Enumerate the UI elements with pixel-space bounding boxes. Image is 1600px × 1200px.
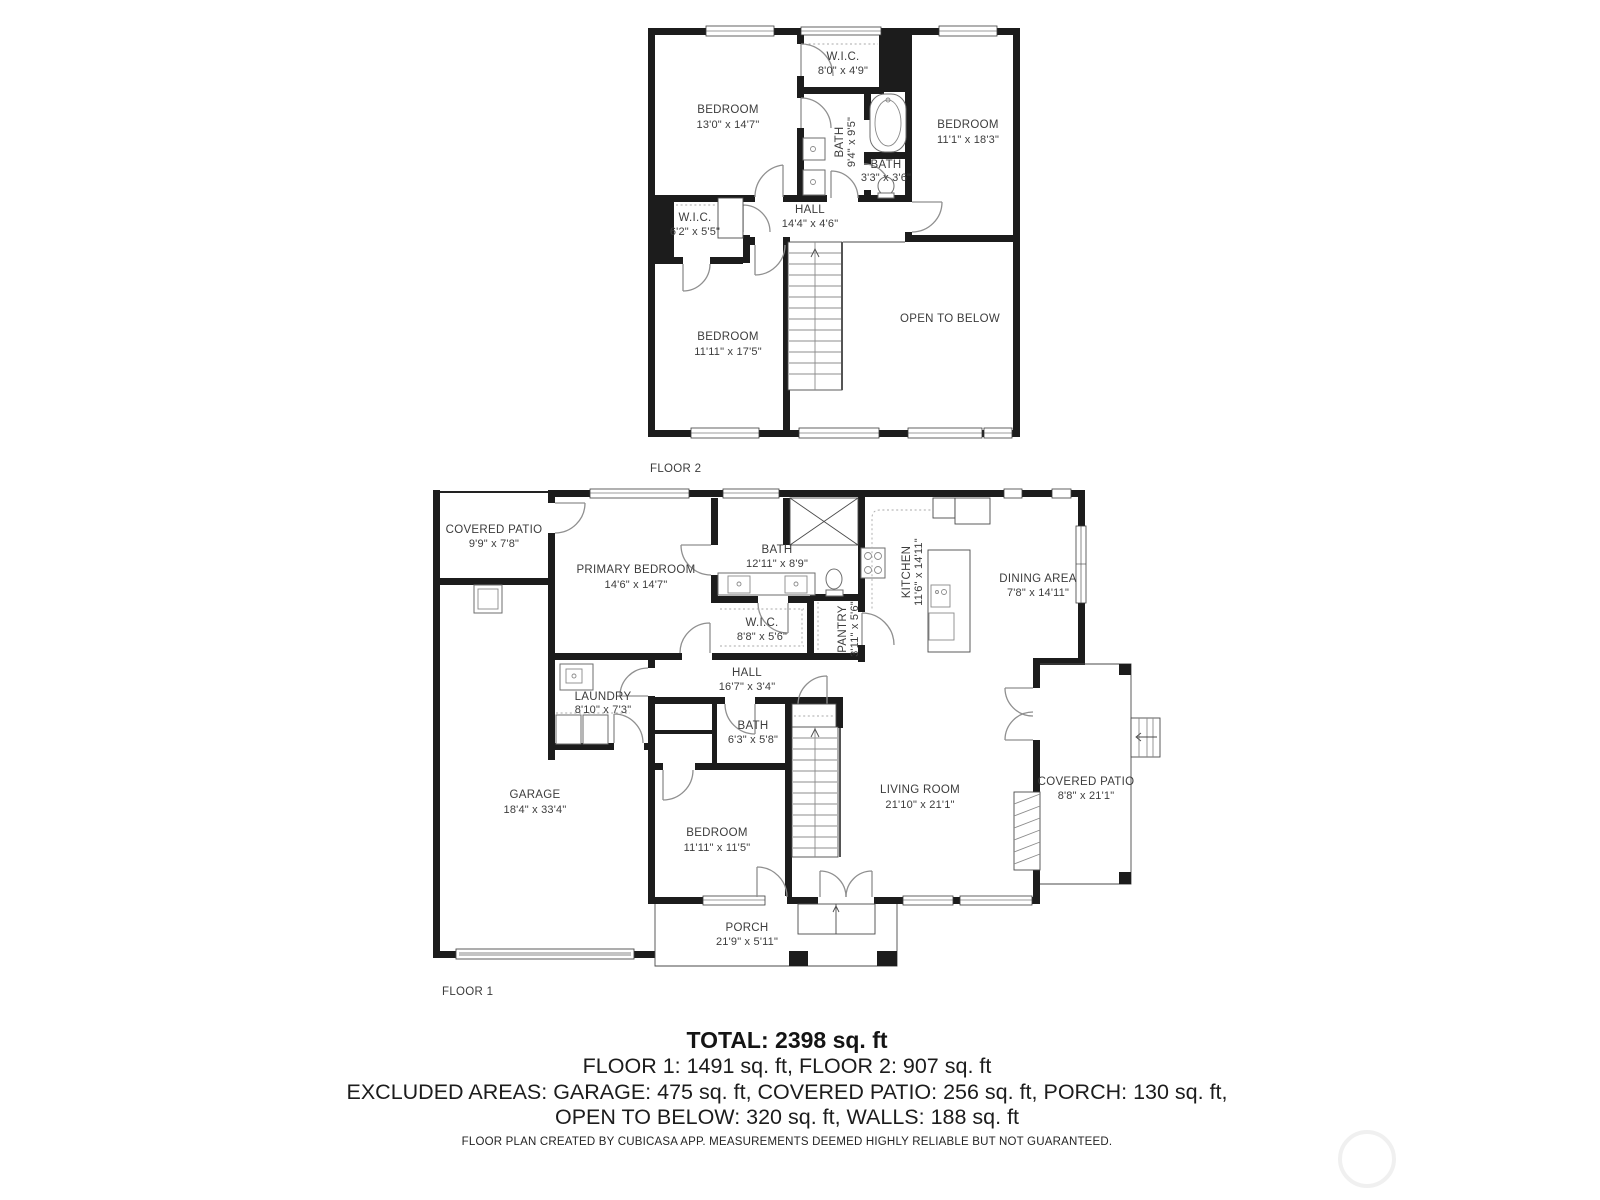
label-f1-patio-back-dims: 9'9" x 7'8" xyxy=(469,538,519,550)
label-f1-living-name: LIVING ROOM xyxy=(880,784,960,796)
label-f2-bath-small-name: BATH xyxy=(870,159,901,171)
cubicasa-watermark-circle xyxy=(1338,1130,1396,1188)
floor1-patio-porch-outlines xyxy=(655,664,1160,966)
label-f2-wic-left-dims: 6'2" x 5'5" xyxy=(670,226,720,238)
label-f2-bedroom2-name: BEDROOM xyxy=(937,119,999,131)
floor1-stairs xyxy=(792,704,841,857)
label-f1-bath-hall-dims: 6'3" x 5'8" xyxy=(728,734,778,746)
label-f2-bath-small-dims: 3'3" x 3'6" xyxy=(861,172,911,184)
label-f1-kitchen-dims: 11'6" x 14'11" xyxy=(913,538,925,606)
label-f1-bath-primary-dims: 12'11" x 8'9" xyxy=(746,558,808,570)
label-f1-garage-name: GARAGE xyxy=(509,789,560,801)
label-f1-primary-name: PRIMARY BEDROOM xyxy=(576,564,695,576)
floor2-stairs xyxy=(788,242,905,390)
label-f2-wic-top-dims: 8'0" x 4'9" xyxy=(818,65,868,77)
summary-total: TOTAL: 2398 sq. ft xyxy=(0,1027,1587,1054)
floor2-plan: BEDROOM 13'0" x 14'7" W.I.C. 8'0" x 4'9"… xyxy=(648,26,1020,475)
label-f1-kitchen-name: KITCHEN xyxy=(901,546,913,599)
label-f1-patio-side-name: COVERED PATIO xyxy=(1038,776,1135,788)
label-f1-porch-name: PORCH xyxy=(725,922,768,934)
label-f2-bedroom2-dims: 11'1" x 18'3" xyxy=(937,134,999,146)
floor2-title: FLOOR 2 xyxy=(650,463,701,475)
floor1-plan: COVERED PATIO 9'9" x 7'8" PRIMARY BEDROO… xyxy=(433,489,1160,998)
label-f2-open-to-below: OPEN TO BELOW xyxy=(900,313,1000,325)
area-summary: TOTAL: 2398 sq. ft FLOOR 1: 1491 sq. ft,… xyxy=(0,1027,1587,1131)
label-f1-bath-primary-name: BATH xyxy=(761,544,792,556)
floor-plan-canvas: BEDROOM 13'0" x 14'7" W.I.C. 8'0" x 4'9"… xyxy=(0,0,1600,1200)
label-f1-dining-dims: 7'8" x 14'11" xyxy=(1007,587,1069,599)
label-f1-garage-dims: 18'4" x 33'4" xyxy=(504,804,567,816)
label-f2-wic-top-name: W.I.C. xyxy=(826,51,859,63)
label-f1-pantry-name: PANTRY xyxy=(837,605,849,652)
summary-floors: FLOOR 1: 1491 sq. ft, FLOOR 2: 907 sq. f… xyxy=(0,1054,1587,1080)
label-f1-bedroom-dims: 11'11" x 11'5" xyxy=(684,842,751,854)
label-f2-bedroom1-dims: 13'0" x 14'7" xyxy=(697,119,760,131)
label-f2-hall-name: HALL xyxy=(795,204,825,216)
label-f2-bath-main-name: BATH xyxy=(834,126,846,157)
label-f1-wic-name: W.I.C. xyxy=(745,617,778,629)
label-f1-pantry-dims: 3'11" x 5'6" xyxy=(849,601,861,657)
label-f1-patio-side-dims: 8'8" x 21'1" xyxy=(1058,790,1115,802)
label-f1-porch-dims: 21'9" x 5'11" xyxy=(716,936,778,948)
summary-excluded-1: EXCLUDED AREAS: GARAGE: 475 sq. ft, COVE… xyxy=(0,1080,1587,1106)
label-f2-bedroom3-name: BEDROOM xyxy=(697,331,759,343)
label-f2-hall-dims: 14'4" x 4'6" xyxy=(782,218,839,230)
label-f1-hall-dims: 16'7" x 3'4" xyxy=(719,681,776,693)
label-f1-laundry-dims: 8'10" x 7'3" xyxy=(575,704,632,716)
label-f1-primary-dims: 14'6" x 14'7" xyxy=(605,579,668,591)
label-f1-hall-name: HALL xyxy=(732,667,762,679)
label-f1-patio-back-name: COVERED PATIO xyxy=(446,524,543,536)
label-f2-bedroom3-dims: 11'11" x 17'5" xyxy=(694,346,762,358)
label-f1-dining-name: DINING AREA xyxy=(999,573,1076,585)
label-f1-wic-dims: 8'8" x 5'6" xyxy=(737,631,787,643)
label-f1-bath-hall-name: BATH xyxy=(737,720,768,732)
label-f2-bath-main-dims: 9'4" x 9'5" xyxy=(846,117,858,167)
label-f1-living-dims: 21'10" x 21'1" xyxy=(885,799,954,811)
label-f2-bedroom1-name: BEDROOM xyxy=(697,104,759,116)
floor-plan-page: BEDROOM 13'0" x 14'7" W.I.C. 8'0" x 4'9"… xyxy=(0,0,1600,1200)
label-f1-bedroom-name: BEDROOM xyxy=(686,827,748,839)
label-f1-laundry-name: LAUNDRY xyxy=(575,691,632,703)
summary-excluded-2: OPEN TO BELOW: 320 sq. ft, WALLS: 188 sq… xyxy=(0,1105,1587,1131)
floor1-title: FLOOR 1 xyxy=(442,986,493,998)
label-f2-wic-left-name: W.I.C. xyxy=(678,212,711,224)
